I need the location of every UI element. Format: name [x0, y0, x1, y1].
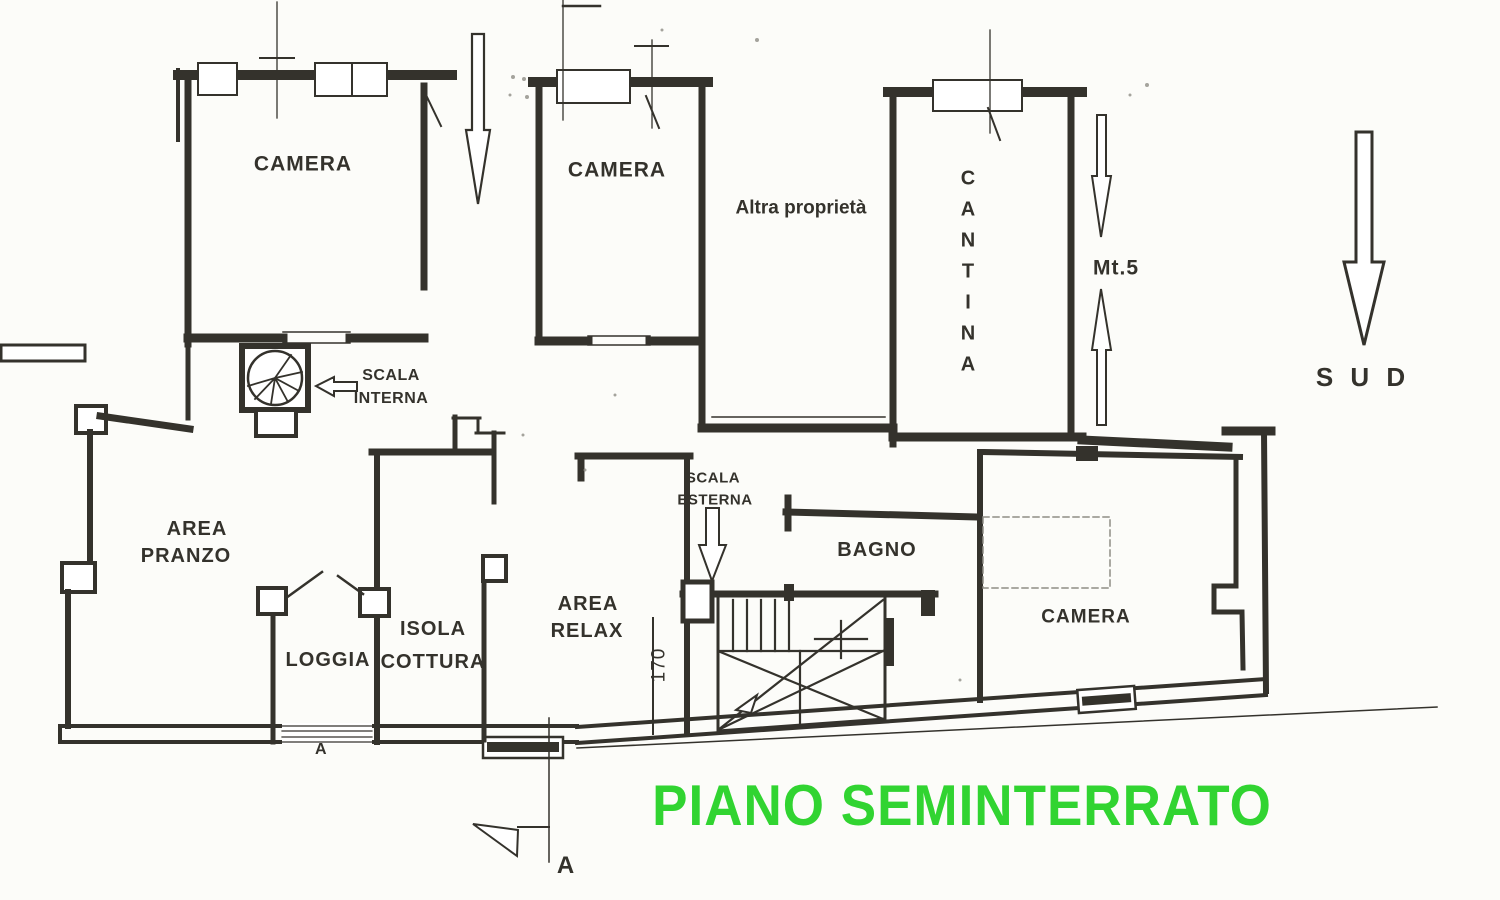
dimension-label-170: 170: [650, 648, 669, 683]
orientation-label-sud: S U D: [1316, 364, 1410, 390]
label-altra-proprieta: Altra proprietà: [736, 199, 867, 218]
room-label-cantina: CANTINA: [958, 168, 978, 385]
section-flag-triangle: [473, 824, 518, 856]
room-camera-se-walls: [980, 452, 1243, 700]
room-camera-nw-walls: [178, 63, 452, 344]
cross-mark: [815, 621, 867, 658]
scala-esterna-arrow: [699, 508, 726, 581]
pillar: [258, 588, 286, 614]
mt5-up-arrow: [1092, 289, 1111, 425]
section-marker-a-loggia: A: [315, 742, 327, 758]
room-label-camera-se: CAMERA: [1041, 608, 1130, 627]
entrance-down-arrow: [466, 34, 490, 204]
altra-proprieta-wall: [702, 417, 893, 428]
window: [933, 80, 1022, 111]
floor-plan-page: CAMERA CAMERA Altra proprietà CANTINA Mt…: [0, 0, 1500, 900]
floor-plan-drawing: [0, 0, 1500, 900]
gable-lines: [286, 572, 363, 598]
stair-treads: [733, 600, 789, 651]
pillar: [683, 582, 712, 621]
window: [198, 63, 237, 95]
dimension-label-mt5: Mt.5: [1093, 258, 1139, 279]
room-label-loggia: LOGGIA: [286, 650, 371, 670]
floor-title: PIANO SEMINTERRATO: [652, 777, 1272, 834]
label-scala-interna-line1: SCALA: [362, 368, 420, 384]
spiral-staircase: [242, 346, 308, 436]
room-bagno-walls: [786, 498, 978, 528]
label-scala-esterna-line1: SCALA: [686, 471, 740, 486]
room-label-isola-cottura-line2: COTTURA: [381, 652, 486, 672]
mt5-down-arrow: [1092, 115, 1111, 237]
external-staircase: [683, 582, 935, 731]
label-scala-esterna-line2: ESTERNA: [677, 493, 752, 508]
loggia-structure: [258, 452, 506, 742]
room-camera-n-walls: [533, 70, 708, 428]
interior-partitions: [372, 417, 690, 734]
left-walls: [1, 344, 190, 726]
room-label-area-pranzo-line1: AREA: [167, 519, 228, 539]
label-scala-interna-line2: INTERNA: [354, 391, 429, 407]
pillar: [483, 556, 506, 581]
scala-interna-arrow: [316, 377, 357, 396]
wall-spur: [1, 345, 85, 361]
room-label-camera-n: CAMERA: [568, 160, 666, 181]
pillar: [360, 589, 389, 616]
stair-direction-arrow: [736, 695, 757, 713]
room-label-area-relax-line1: AREA: [558, 594, 619, 614]
room-label-area-relax-line2: RELAX: [551, 621, 624, 641]
section-marker-a-bottom: A: [557, 854, 575, 878]
scan-specks: [509, 29, 1150, 682]
slanted-bottom-wall: [577, 679, 1437, 748]
window: [557, 70, 630, 103]
dashed-area: [983, 517, 1110, 588]
room-label-bagno: BAGNO: [837, 540, 916, 560]
sud-arrow: [1344, 132, 1384, 345]
room-label-area-pranzo-line2: PRANZO: [141, 546, 231, 566]
room-cantina-walls: [888, 80, 1082, 444]
room-label-camera-nw: CAMERA: [254, 154, 352, 175]
door-bar: [884, 618, 894, 666]
room-label-isola-cottura-line1: ISOLA: [400, 619, 466, 639]
